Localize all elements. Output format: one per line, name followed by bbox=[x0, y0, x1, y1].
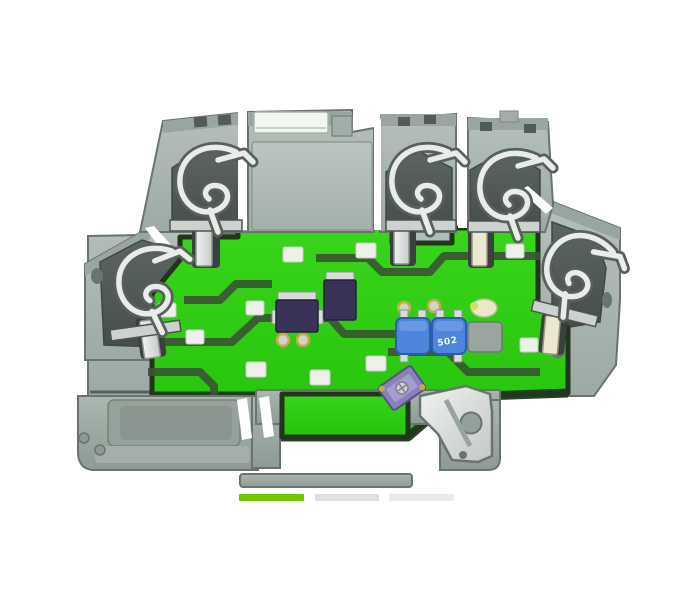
vent-slot bbox=[218, 114, 232, 125]
block-gap bbox=[374, 119, 381, 230]
solder-pad bbox=[366, 356, 386, 371]
upper-block-mid-right-chamfer bbox=[380, 114, 456, 126]
foot-pin bbox=[95, 445, 105, 455]
product-photo: 502 bbox=[0, 0, 700, 600]
smd-component bbox=[324, 280, 356, 320]
marking-label bbox=[254, 112, 328, 133]
housing-hole bbox=[91, 268, 103, 284]
vent-slot bbox=[194, 116, 208, 127]
center-module-tab bbox=[332, 116, 352, 136]
foot-pin bbox=[79, 433, 89, 443]
product-image-viewer: 502 bbox=[0, 0, 700, 600]
through-hole-pin bbox=[277, 334, 289, 346]
carousel-indicator-slide-1[interactable] bbox=[239, 494, 304, 501]
carousel-indicator bbox=[0, 494, 700, 504]
vent-slot bbox=[524, 124, 536, 133]
foot-lip bbox=[95, 446, 250, 463]
solder-pad bbox=[246, 362, 266, 377]
trimmer-cap bbox=[399, 321, 427, 331]
solder-pad bbox=[506, 244, 524, 258]
latch-dimple bbox=[459, 451, 467, 459]
relay-block bbox=[468, 322, 502, 352]
upper-block-right-notch bbox=[500, 111, 518, 122]
carousel-indicator-slide-2[interactable] bbox=[315, 494, 379, 501]
terminal-post bbox=[196, 226, 212, 266]
foot-recess-inner bbox=[120, 406, 232, 440]
solder-pad bbox=[246, 301, 264, 315]
solder-pad bbox=[283, 247, 303, 262]
solder-pad bbox=[520, 338, 538, 352]
solder-pad bbox=[356, 243, 376, 258]
vent-slot bbox=[424, 115, 436, 124]
vent-slot bbox=[480, 122, 492, 131]
block-gap bbox=[238, 110, 247, 230]
through-hole-pin bbox=[297, 334, 309, 346]
led-dot bbox=[470, 302, 478, 310]
smd-component bbox=[276, 300, 318, 332]
vent-slot bbox=[398, 117, 410, 126]
trimmer-cap bbox=[435, 321, 463, 331]
terminal-post bbox=[542, 315, 560, 354]
center-module-face bbox=[252, 142, 372, 230]
terminal-block-photo: 502 bbox=[0, 0, 700, 600]
housing-hole bbox=[602, 292, 612, 308]
terminal-post bbox=[472, 228, 487, 266]
block-gap bbox=[458, 116, 467, 228]
solder-pad bbox=[186, 330, 204, 344]
carousel-indicator-slide-3[interactable] bbox=[389, 494, 454, 501]
rail-lip bbox=[240, 474, 412, 487]
busbar bbox=[170, 220, 242, 231]
solder-pad bbox=[310, 370, 330, 385]
